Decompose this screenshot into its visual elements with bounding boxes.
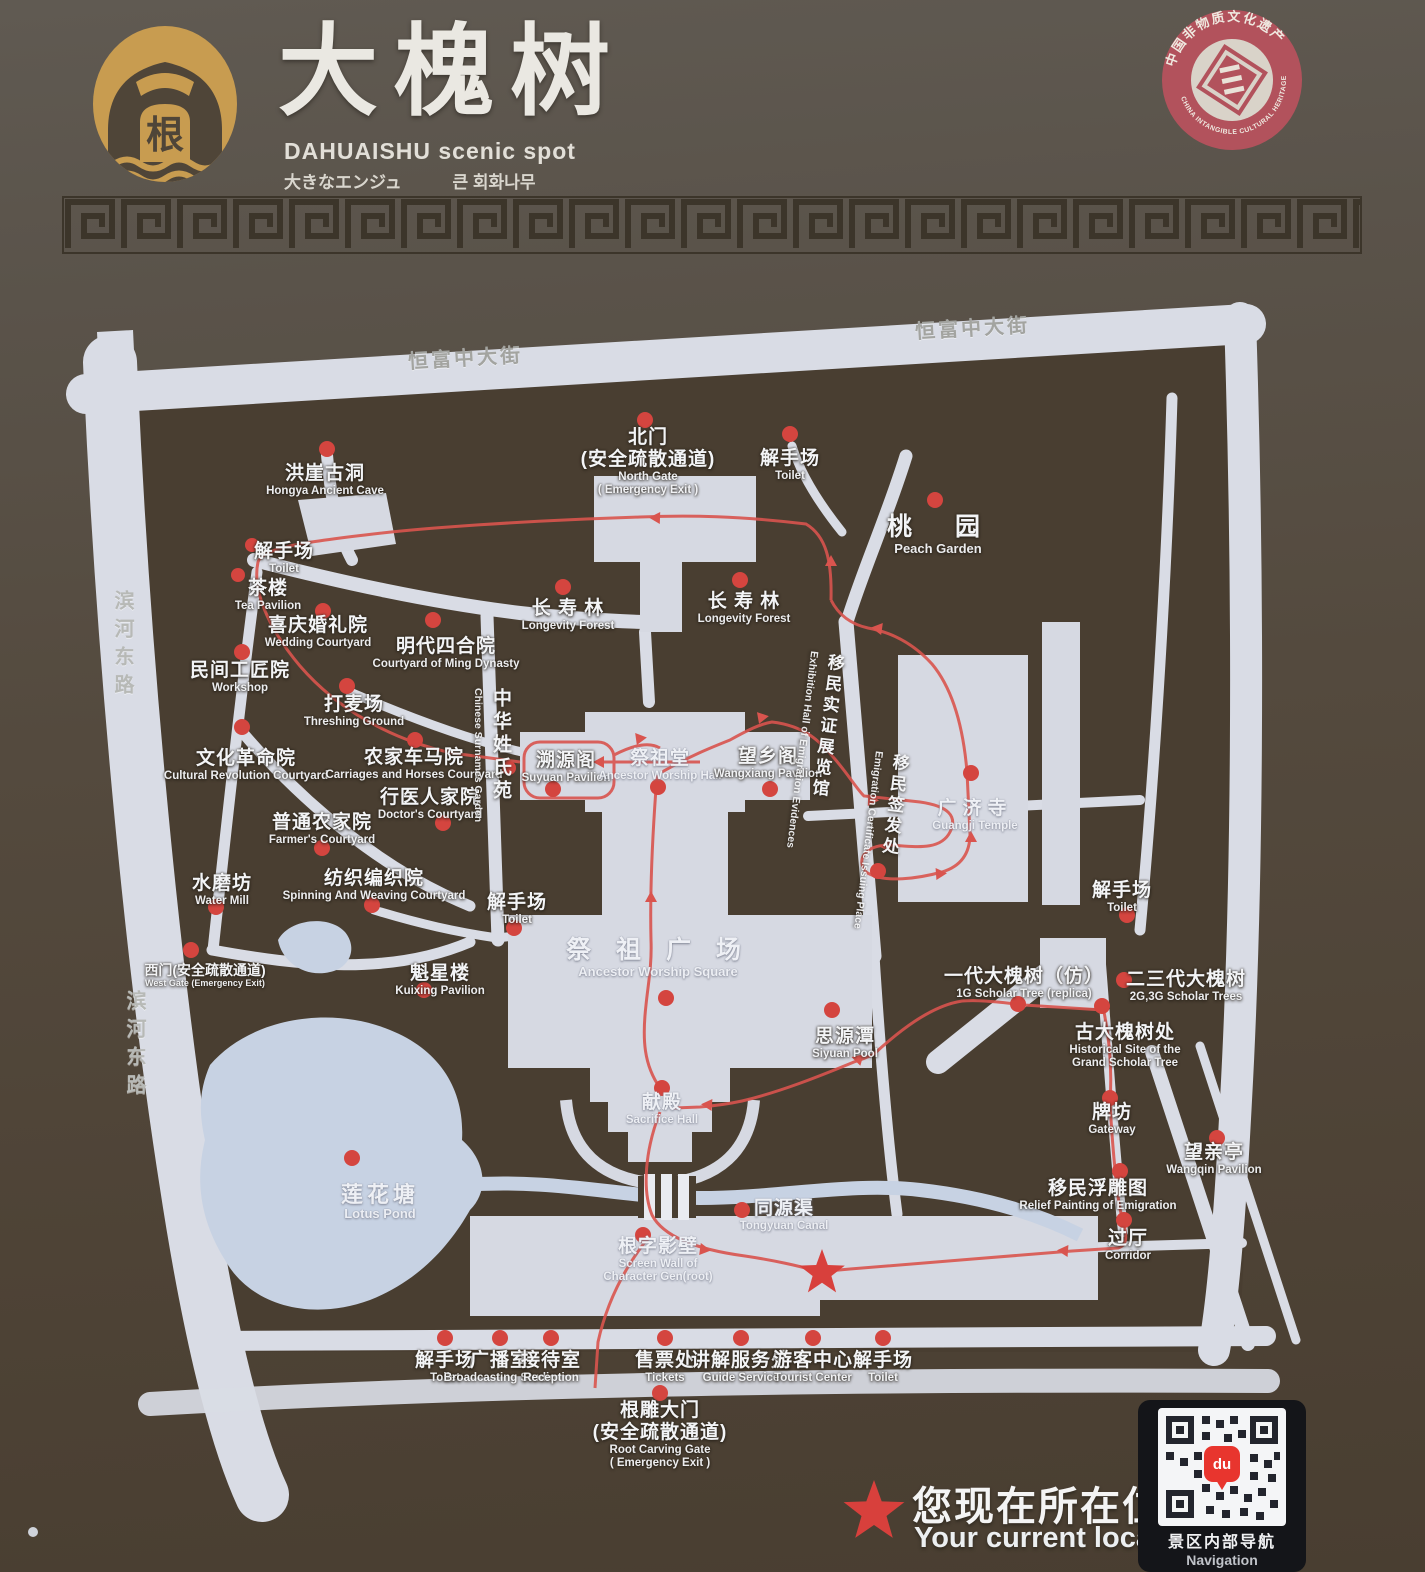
poi-relief-painting: 移民浮雕图Relief Painting of Emigration <box>1019 1178 1176 1213</box>
qr-code: du <box>1158 1408 1286 1526</box>
poi-longevity-forest-2: 长 寿 林Longevity Forest <box>698 591 791 626</box>
poi-water-mill: 水磨坊Water Mill <box>192 873 252 908</box>
qr-navigation-block: du 景区内部导航 Navigation <box>1138 1400 1306 1572</box>
poi-west-gate: 西门(安全疏散通道)West Gate (Emergency Exit) <box>144 962 265 988</box>
logo-character: 根 <box>146 115 184 157</box>
corner-dot <box>28 1527 38 1537</box>
poi-1g-scholar-tree: 一代大槐树（仿）1G Scholar Tree (replica) <box>944 966 1104 1001</box>
poi-grand-scholar-tree-site: 古大槐树处 Historical Site of the Grand Schol… <box>1069 1022 1180 1070</box>
poi-siyuan-pool: 思源潭Siyuan Pool <box>812 1026 878 1061</box>
poi-surnames-garden: Chinese Surnames Garden 中华姓氏苑 <box>472 688 514 822</box>
poi-tea-pavilion: 茶楼Tea Pavilion <box>235 578 301 613</box>
meander-border <box>62 196 1362 254</box>
poi-screen-wall: 根字影壁 Screen Wall of Character Gen(root) <box>603 1236 712 1284</box>
road-stub <box>97 330 135 374</box>
poi-toilet-south-2: 解手场Toilet <box>853 1350 913 1385</box>
poi-farmers-courtyard: 普通农家院Farmer's Courtyard <box>269 812 375 847</box>
poi-root-carving-gate: 根雕大门 (安全疏散通道) Root Carving Gate ( Emerge… <box>593 1400 728 1470</box>
poi-north-gate: 北门 (安全疏散通道) North Gate ( Emergency Exit … <box>581 427 716 497</box>
pin-label: du <box>1213 1456 1231 1473</box>
qr-caption-cn: 景区内部导航 <box>1138 1528 1306 1552</box>
poi-reception: 接待室Reception <box>521 1350 581 1385</box>
scenic-map-sign: 根 大槐树 DAHUAISHU scenic spot 大きなエンジュ 큰 회화… <box>0 0 1425 1572</box>
poi-toilet-center: 解手场Toilet <box>487 892 547 927</box>
poi-tickets: 售票处Tickets <box>635 1350 695 1385</box>
poi-kuixing-pavilion: 魁星楼Kuixing Pavilion <box>395 963 484 998</box>
poi-ancestor-worship-square: 祭 祖 广 场Ancestor Worship Square <box>566 936 750 980</box>
poi-toilet-east: 解手场Toilet <box>1092 880 1152 915</box>
legend-star-icon <box>844 1480 905 1538</box>
poi-wangqin-pavilion: 望亲亭Wangqin Pavilion <box>1166 1142 1261 1177</box>
poi-lotus-pond: 莲花塘 Lotus Pond <box>341 1182 419 1222</box>
poi-tourist-center: 游客中心Tourist Center <box>773 1350 853 1385</box>
poi-doctors-courtyard: 行医人家院Doctor's Courtyard <box>378 787 482 822</box>
poi-guangji-temple: 广济寺 Guangji Temple <box>932 798 1017 833</box>
poi-gateway: 牌坊Gateway <box>1088 1102 1135 1137</box>
poi-corridor: 过厅Corridor <box>1105 1228 1151 1263</box>
poi-suyuan-pavilion: 溯源阁Suyuan Pavilion <box>522 750 611 785</box>
poi-hongya-cave: 洪崖古洞Hongya Ancient Cave <box>266 463 384 498</box>
poi-sacrifice-hall: 献殿Sacrifice Hall <box>626 1092 698 1127</box>
poi-workshop: 民间工匠院Workshop <box>190 660 290 695</box>
street-binhe-2: 滨河东路 <box>120 990 149 1102</box>
poi-2g3g-scholar-trees: 二三代大槐树2G,3G Scholar Trees <box>1126 969 1246 1004</box>
poi-longevity-forest-1: 长 寿 林Longevity Forest <box>522 598 615 633</box>
poi-toilet-west: 解手场Toilet <box>254 541 314 576</box>
poi-wedding-courtyard: 喜庆婚礼院Wedding Courtyard <box>265 615 371 650</box>
street-binhe-1: 滨河东路 <box>108 590 137 702</box>
poi-ancestor-worship-hall: 祭祖堂Ancestor Worship Hall <box>598 748 721 783</box>
poi-tongyuan-canal: 同源渠Tongyuan Canal <box>740 1198 829 1233</box>
poi-toilet-north: 解手场Toilet <box>760 448 820 483</box>
poi-cultural-revolution-courtyard: 文化革命院Cultural Revolution Courtyard <box>164 748 328 783</box>
poi-peach-garden: 桃 园Peach Garden <box>887 513 989 557</box>
qr-caption-en: Navigation <box>1138 1552 1306 1568</box>
scenic-logo: 根 <box>88 22 242 186</box>
poi-weaving-courtyard: 纺织编织院Spinning And Weaving Courtyard <box>283 868 466 903</box>
poi-threshing-ground: 打麦场Threshing Ground <box>304 694 404 729</box>
poi-ming-courtyard: 明代四合院Courtyard of Ming Dynasty <box>373 636 520 671</box>
